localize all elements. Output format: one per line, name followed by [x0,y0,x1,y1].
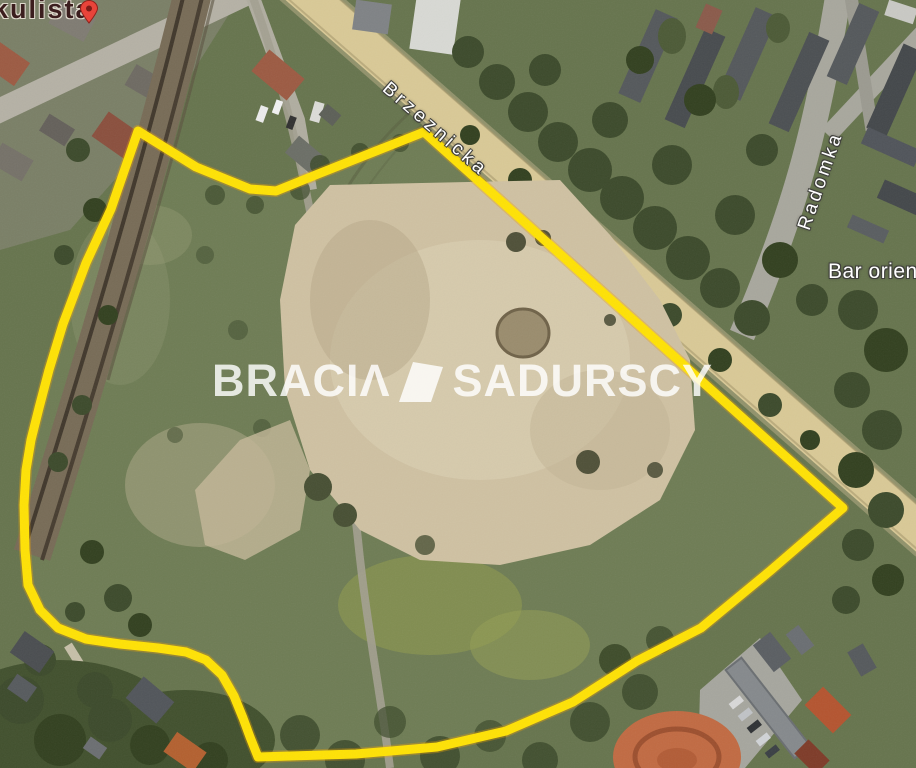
brand-logo-icon [397,362,443,402]
satellite-map-image[interactable]: kulista Brzeznicka Radomka Bar orien BRA… [0,0,916,768]
watermark-brand-right: SADURSCY [453,355,714,407]
map-pin-icon [78,0,100,24]
watermark: BRACIΛ SADURSCY [212,355,713,407]
watermark-brand-left: BRACIΛ [212,355,391,407]
poi-label-bar: Bar orien [828,260,916,284]
